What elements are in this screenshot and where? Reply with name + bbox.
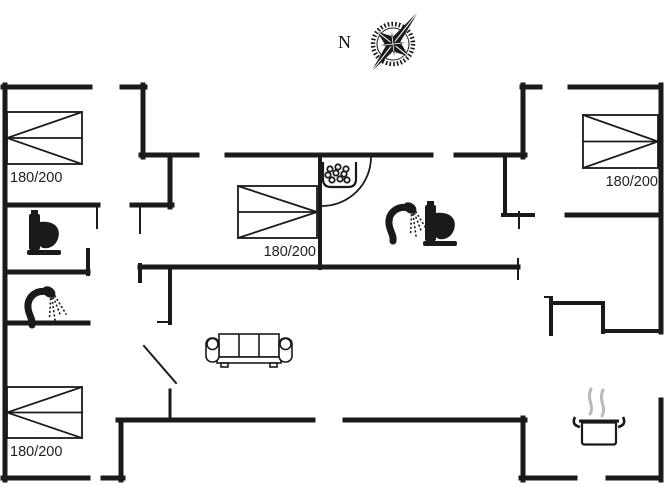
- steam-icon: [589, 389, 603, 416]
- bed-size-label: 180/200: [264, 244, 316, 260]
- floor-plan-image: N: [0, 0, 667, 500]
- sofa-icon: [206, 334, 292, 367]
- cooking-pot-icon: [574, 389, 624, 445]
- compass-north-label: N: [338, 32, 351, 52]
- double-bed-icon: [7, 387, 82, 438]
- shower-icon: [389, 200, 427, 241]
- double-bed-icon: [7, 112, 82, 164]
- double-bed-icon: [238, 186, 317, 238]
- whirlpool-tub-icon: [323, 162, 356, 187]
- bed-size-label: 180/200: [10, 444, 62, 460]
- door-leaf: [144, 346, 176, 383]
- toilet-icon: [423, 201, 457, 246]
- beds: [7, 112, 658, 438]
- bed-size-label: 180/200: [10, 170, 62, 186]
- compass-rose-icon: N: [338, 0, 435, 85]
- walls: [3, 85, 661, 480]
- double-bed-icon: [583, 115, 658, 168]
- bed-size-label: 180/200: [606, 174, 658, 190]
- floor-plan: N: [0, 0, 667, 500]
- shower-icon: [28, 284, 66, 325]
- toilet-icon: [27, 210, 61, 255]
